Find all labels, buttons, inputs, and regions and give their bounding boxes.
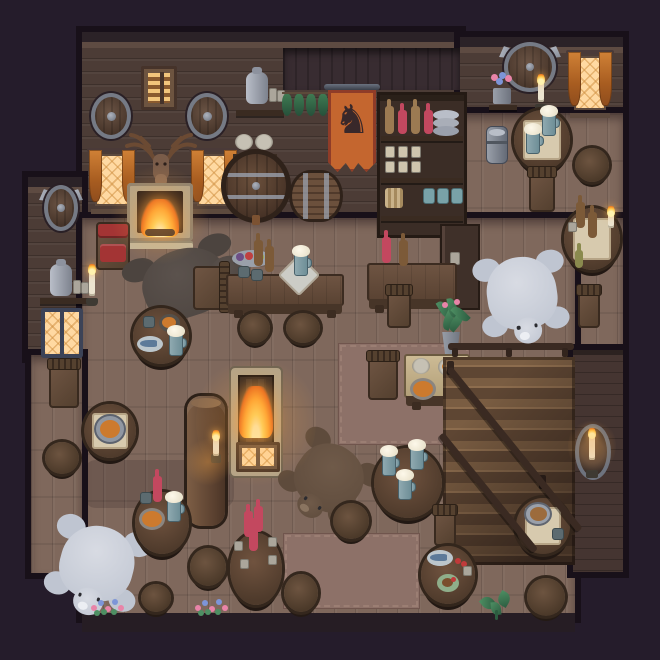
flower-pot-shelf [489,72,517,110]
barrel-side[interactable] [289,170,343,222]
stool-center[interactable] [333,503,369,539]
stool-sw-1[interactable] [190,548,226,586]
table-candlelit[interactable] [564,208,620,270]
flowerbed-left [91,597,127,615]
stool-ne[interactable] [575,148,609,182]
table-stew-southwest[interactable] [135,492,189,554]
plant-sprout [480,590,514,620]
tavern-scene: ♞ [0,0,660,660]
bottle-on-floor [575,250,583,268]
milk-can[interactable] [486,126,508,164]
table-wine[interactable] [230,533,282,605]
stool-bar-1[interactable] [240,313,270,343]
stool-sw-2[interactable] [141,584,171,612]
candle-sconce-annex [84,266,100,306]
horse-sigil: ♞ [328,100,376,140]
cellar-hatch[interactable] [236,442,280,472]
stool-annex[interactable] [45,442,79,474]
chair-fishtable[interactable] [431,504,459,550]
candle-shield-stairwell [571,424,615,480]
horse-banner: ♞ [324,84,380,172]
hanging-herbs [282,92,330,122]
curtain-window-upper-right [566,50,614,118]
stool-south[interactable] [284,574,318,612]
bar-table[interactable] [226,274,344,318]
chair-by-rug[interactable] [190,260,230,314]
chair-bottles[interactable] [384,284,414,332]
rug-polarbear-east [476,248,568,340]
stool-bar-2[interactable] [286,313,320,343]
table-fish-south[interactable] [421,546,475,604]
table-ne[interactable] [514,110,570,170]
flowerbed-mid [195,597,225,615]
bottle-shelf-unit[interactable] [377,92,467,238]
axe-shield-annex [38,183,84,233]
shuttered-window [141,66,177,110]
jug-shelf-annex [40,262,90,304]
table-cauldron[interactable] [84,404,136,458]
railing-landing [448,343,574,357]
table-fish-west[interactable] [133,308,189,364]
jug-shelf-center [236,70,284,116]
chair-east[interactable] [575,284,603,332]
barrel-front[interactable] [221,149,291,223]
side-window-annex [41,308,83,358]
stool-se[interactable] [527,578,565,616]
chair-supper[interactable] [365,350,401,404]
roof-beam-pillar [187,396,225,526]
chair-ne[interactable] [526,166,558,216]
chair-annex[interactable] [46,358,82,412]
